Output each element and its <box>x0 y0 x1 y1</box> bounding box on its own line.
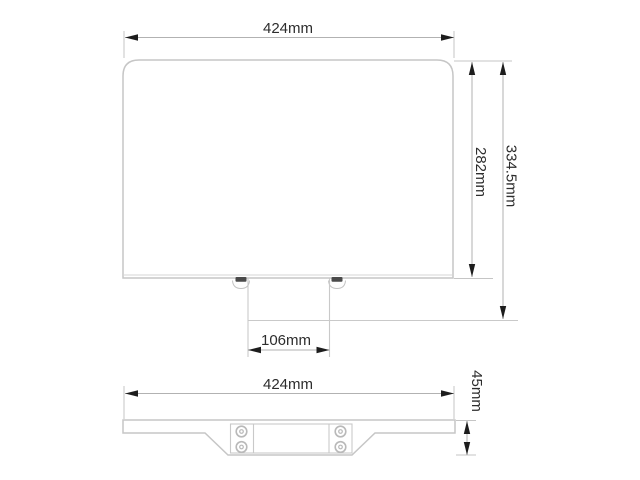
arrowhead-top <box>469 62 475 75</box>
right-tab-clip-icon <box>332 277 343 282</box>
dim-label-panel-height: 282mm <box>472 147 489 197</box>
screw-hole-top-left <box>236 426 247 437</box>
arrowhead-right <box>441 34 454 41</box>
arrowhead-left <box>125 34 138 41</box>
left-tab-clip-icon <box>236 277 247 282</box>
arrowhead-bottom <box>500 306 506 319</box>
dim-front-width: 424mm <box>124 20 454 58</box>
screw-hole-bottom-right <box>335 442 346 453</box>
screw-hole-top-right <box>335 426 346 437</box>
arrowhead-right <box>441 390 454 397</box>
dim-bracket-width: 106mm <box>248 332 330 353</box>
screw-hole-icon <box>335 426 346 437</box>
arrowhead-bottom <box>469 264 475 277</box>
panel-outline <box>123 60 453 278</box>
screw-hole-icon <box>236 426 247 437</box>
dim-overall-height: 334.5mm <box>500 62 520 319</box>
front-view: 424mm 282mm 334.5mm 106mm <box>123 20 520 357</box>
arrowhead-left <box>248 347 261 353</box>
dim-label-bracket-width: 106mm <box>261 332 311 349</box>
dim-panel-height: 282mm <box>469 62 489 277</box>
dim-label-bottom-width: 424mm <box>263 376 313 393</box>
bottom-view: 424mm 45mm <box>123 370 485 455</box>
dim-label-front-width: 424mm <box>263 20 313 37</box>
dim-label-thickness: 45mm <box>468 370 485 412</box>
screw-hole-icon <box>335 442 346 453</box>
arrowhead-top <box>500 62 506 75</box>
dimension-drawing-canvas: 424mm 282mm 334.5mm 106mm <box>0 0 640 480</box>
arrowhead-right <box>317 347 330 353</box>
dim-label-overall-height: 334.5mm <box>503 145 520 208</box>
bottom-view-outline <box>123 420 455 455</box>
arrowhead-top <box>464 421 470 434</box>
dim-thickness: 45mm <box>456 370 485 455</box>
arrowhead-bottom <box>464 442 470 455</box>
screw-hole-icon <box>236 442 247 453</box>
dim-bottom-width: 424mm <box>124 376 454 419</box>
screw-hole-bottom-left <box>236 442 247 453</box>
arrowhead-left <box>125 390 138 397</box>
technical-drawing-page: 424mm 282mm 334.5mm 106mm <box>0 0 640 480</box>
